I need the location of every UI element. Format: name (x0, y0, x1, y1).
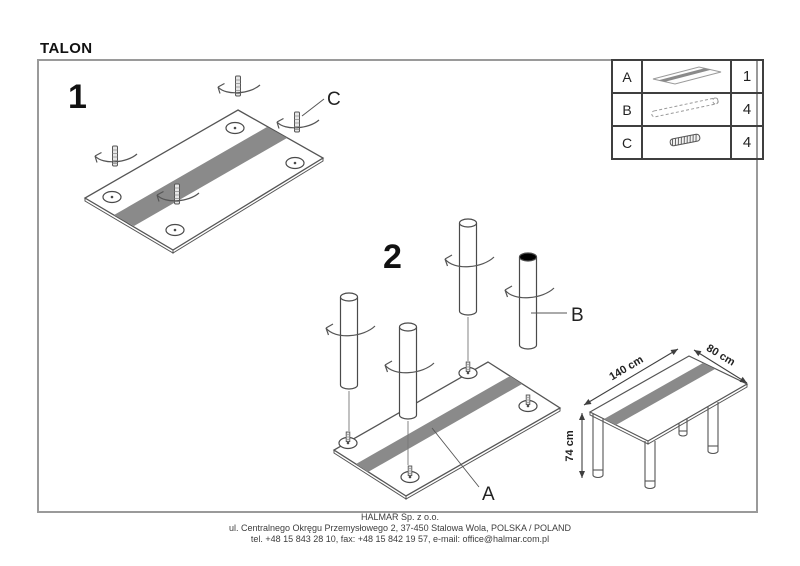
step2-drawing: 2 B A (326, 219, 584, 505)
height-dimension-label: 74 cm (564, 430, 576, 461)
label-c-leader (302, 99, 324, 116)
parts-row-c: C 4 (612, 126, 763, 159)
final-table-drawing: 140 cm 80 cm 74 cm (564, 342, 747, 488)
tabletop-icon (645, 61, 729, 87)
screw-mount (286, 158, 304, 169)
part-qty: 4 (731, 93, 763, 126)
screw-mount (103, 192, 121, 203)
table-leg-b (520, 253, 537, 349)
screw-icon (645, 127, 729, 153)
footer-address: ul. Centralnego Okręgu Przemysłowego 2, … (0, 523, 800, 534)
length-dimension-label: 140 cm (607, 354, 645, 384)
footer: HALMAR Sp. z o.o. ul. Centralnego Okręgu… (0, 512, 800, 545)
screw-stub (408, 466, 412, 476)
label-a: A (482, 484, 495, 505)
label-c: C (327, 89, 341, 110)
screw-stub (466, 362, 470, 372)
parts-row-b: B 4 (612, 93, 763, 126)
table-leg (400, 323, 417, 419)
screw-mount (226, 123, 244, 134)
table-leg (341, 293, 358, 389)
part-letter: A (612, 60, 642, 93)
instruction-sheet: TALON (0, 0, 800, 566)
part-qty: 4 (731, 126, 763, 159)
step1-drawing: 1 C (68, 76, 341, 253)
footer-company: HALMAR Sp. z o.o. (0, 512, 800, 523)
screw-mount (166, 225, 184, 236)
part-qty: 1 (731, 60, 763, 93)
depth-dimension-label: 80 cm (704, 342, 737, 368)
parts-table: A 1 B 4 C (611, 59, 764, 160)
footer-contact: tel. +48 15 843 28 10, fax: +48 15 842 1… (0, 534, 800, 545)
step2-number: 2 (383, 238, 402, 276)
screw-stub (526, 395, 530, 405)
step1-number: 1 (68, 78, 87, 116)
part-letter: B (612, 93, 642, 126)
screw-stub (346, 432, 350, 442)
parts-row-a: A 1 (612, 60, 763, 93)
leg-icon (645, 94, 729, 120)
part-letter: C (612, 126, 642, 159)
screw (113, 146, 118, 166)
label-b: B (571, 305, 584, 326)
screw (295, 112, 300, 132)
